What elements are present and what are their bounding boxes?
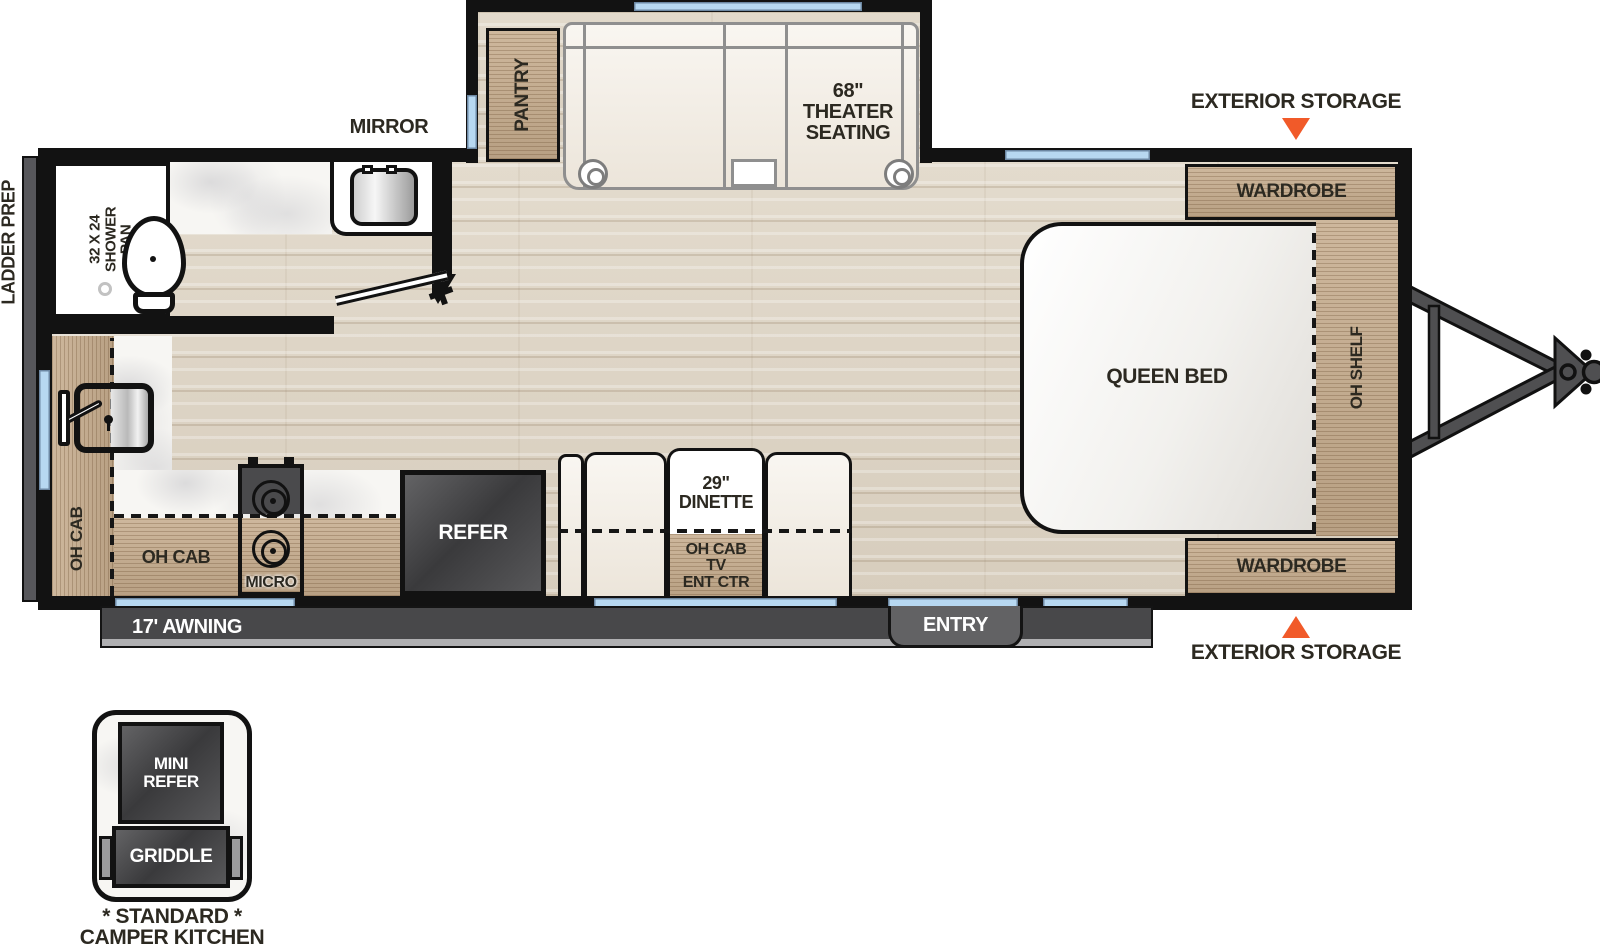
dinette-end-panel xyxy=(558,454,584,596)
theater-seating: 68" THEATER SEATING xyxy=(563,22,919,190)
pantry-label: PANTRY xyxy=(513,30,533,160)
console-left-line xyxy=(723,25,726,187)
exterior-storage-bottom-label: EXTERIOR STORAGE xyxy=(1178,642,1414,664)
seat-back-line xyxy=(566,46,916,49)
burner-icon-1 xyxy=(252,480,290,518)
griddle-label: GRIDDLE xyxy=(130,847,213,867)
exterior-storage-bottom-marker xyxy=(1282,616,1310,638)
dinette-bench-left xyxy=(584,452,667,596)
refrigerator: REFER xyxy=(400,470,546,596)
camper-kitchen-caption: * STANDARD * CAMPER KITCHEN xyxy=(50,906,294,948)
oh-cab-side-label: OH CAB xyxy=(68,497,86,581)
griddle: GRIDDLE xyxy=(112,826,230,888)
vanity-counter xyxy=(170,162,332,234)
griddle-handle-left xyxy=(99,836,113,880)
ent-ctr-label: OH CAB TV ENT CTR xyxy=(683,542,750,592)
queen-bed-label: QUEEN BED xyxy=(1022,366,1312,388)
bed-dashline xyxy=(1312,224,1316,532)
shower-drain-icon xyxy=(98,282,112,296)
oh-shelf-label: OH SHELF xyxy=(1348,316,1366,420)
toilet-icon xyxy=(122,216,186,316)
oh-cab-galley-label: OH CAB xyxy=(134,548,218,567)
wardrobe-bottom-label: WARDROBE xyxy=(1237,557,1347,577)
window-kitchen-side xyxy=(39,370,50,490)
bathroom-wall-bottom xyxy=(38,316,334,334)
window-bedroom-top xyxy=(1005,150,1150,160)
refer-label: REFER xyxy=(438,522,507,544)
cupholder-left-icon xyxy=(578,159,608,189)
trailer-hitch-icon xyxy=(1405,276,1600,466)
floorplan-canvas: PANTRY 68" THEATER SEATING 32 X 24 SHOWE… xyxy=(0,0,1600,950)
mini-refer: MINI REFER xyxy=(118,722,224,824)
wardrobe-top: WARDROBE xyxy=(1185,164,1398,220)
bath-sink-icon xyxy=(350,168,418,226)
wardrobe-top-label: WARDROBE xyxy=(1237,182,1347,202)
oh-cab-dashline-v xyxy=(110,338,114,596)
entry-label: ENTRY xyxy=(923,615,988,636)
micro-label: MICRO xyxy=(236,575,306,592)
stove-micro: MICRO xyxy=(238,464,304,596)
dinette-size-label: 29" DINETTE xyxy=(679,474,753,511)
theater-seating-label: 68" THEATER SEATING xyxy=(780,81,916,143)
bathroom-wall-right xyxy=(432,148,452,276)
burner-icon-2 xyxy=(252,530,290,568)
ladder-prep-label: LADDER PREP xyxy=(0,157,18,327)
awning-label: 17' AWNING xyxy=(132,617,242,638)
mirror-label: MIRROR xyxy=(341,117,437,138)
cupholder-right-icon xyxy=(884,159,914,189)
kitchen-sink-icon xyxy=(74,383,154,453)
griddle-handle-right xyxy=(229,836,243,880)
rear-bumper xyxy=(22,156,38,602)
dinette-dashline xyxy=(558,529,852,533)
dinette-table: 29" DINETTE OH CAB TV ENT CTR xyxy=(667,448,765,596)
exterior-storage-top-marker xyxy=(1282,118,1310,140)
console-tray xyxy=(731,159,777,187)
exterior-storage-top-label: EXTERIOR STORAGE xyxy=(1178,91,1414,113)
mini-refer-label: MINI REFER xyxy=(143,755,199,790)
dinette-bench-right xyxy=(765,452,852,596)
window-slideout-side xyxy=(467,95,477,149)
wardrobe-bottom: WARDROBE xyxy=(1185,538,1398,596)
window-slideout-top xyxy=(634,2,862,11)
entry-tab: ENTRY xyxy=(888,606,1023,648)
